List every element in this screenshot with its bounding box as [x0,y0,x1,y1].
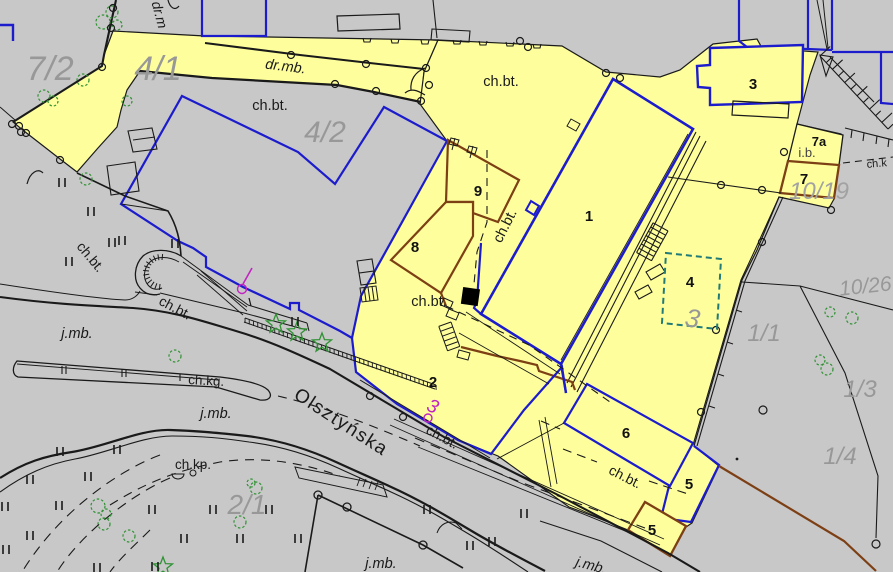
svg-text:2: 2 [429,374,437,391]
svg-text:4: 4 [686,274,695,291]
svg-text:8: 8 [411,239,419,256]
svg-text:6: 6 [622,425,630,442]
svg-text:ch.bt.: ch.bt. [252,98,287,114]
svg-text:1/3: 1/3 [843,376,877,403]
svg-text:1/4: 1/4 [823,443,856,470]
svg-text:ch.kg.: ch.kg. [188,372,225,389]
svg-text:j.mb.: j.mb. [198,406,231,422]
svg-text:1: 1 [585,208,593,225]
svg-text:4/2: 4/2 [304,116,346,149]
svg-text:2/1: 2/1 [227,489,267,520]
svg-text:10/19: 10/19 [789,178,849,205]
svg-text:j.mb.: j.mb. [363,556,396,572]
svg-text:7: 7 [800,171,808,188]
svg-text:7/2: 7/2 [26,50,73,88]
svg-text:ch.kp.: ch.kp. [175,457,211,472]
svg-text:3: 3 [749,76,757,93]
svg-text:1/1: 1/1 [747,320,780,347]
svg-text:5: 5 [648,522,656,539]
svg-text:4/1: 4/1 [134,50,181,88]
svg-text:7a: 7a [812,134,827,149]
svg-text:9: 9 [474,183,482,200]
svg-text:j.mb.: j.mb. [59,326,92,342]
svg-text:5: 5 [685,476,693,493]
svg-text:ch.bt.: ch.bt. [411,294,446,310]
svg-text:ch.bt.: ch.bt. [483,74,518,90]
svg-text:ch.k: ch.k [866,157,888,171]
